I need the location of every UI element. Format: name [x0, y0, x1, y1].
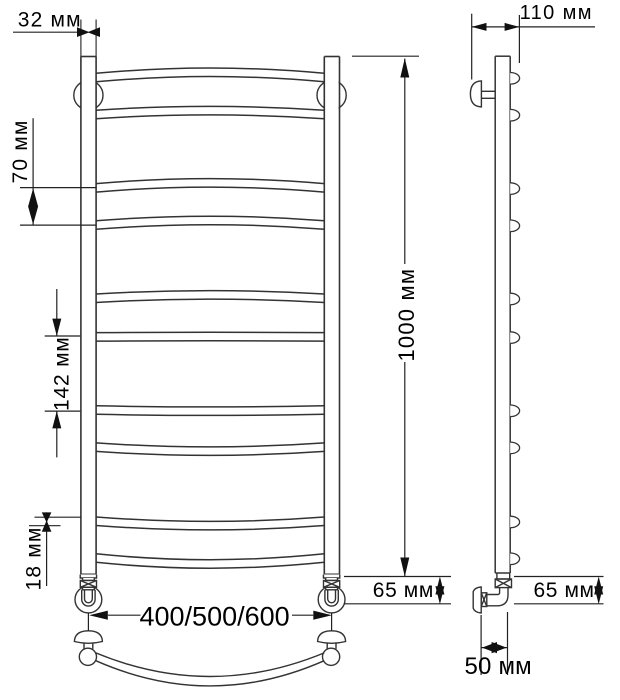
svg-text:65 мм: 65 мм — [534, 579, 595, 602]
svg-text:400/500/600: 400/500/600 — [140, 601, 290, 631]
svg-text:142 мм: 142 мм — [50, 336, 73, 411]
svg-text:32 мм: 32 мм — [18, 8, 82, 31]
svg-text:110 мм: 110 мм — [520, 2, 593, 24]
svg-text:65 мм: 65 мм — [373, 579, 434, 602]
svg-text:18 мм: 18 мм — [23, 526, 46, 590]
svg-text:50 мм: 50 мм — [465, 653, 532, 680]
svg-text:70 мм: 70 мм — [9, 119, 32, 183]
svg-text:1000 мм: 1000 мм — [394, 268, 419, 362]
